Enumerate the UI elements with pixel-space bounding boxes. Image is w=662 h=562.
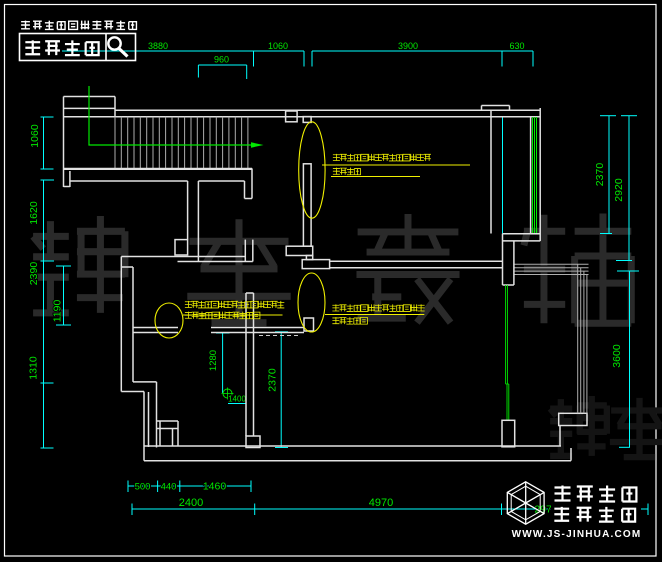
svg-text:500: 500 bbox=[135, 482, 151, 493]
svg-text:WWW.JS-JINHUA.COM: WWW.JS-JINHUA.COM bbox=[512, 529, 642, 540]
svg-text:2370: 2370 bbox=[594, 163, 606, 187]
svg-text:1310: 1310 bbox=[28, 356, 40, 380]
svg-text:2400: 2400 bbox=[179, 497, 203, 509]
svg-text:960: 960 bbox=[214, 55, 229, 65]
svg-text:1620: 1620 bbox=[28, 201, 40, 225]
svg-text:2920: 2920 bbox=[613, 178, 625, 202]
svg-text:440: 440 bbox=[161, 482, 177, 493]
svg-text:1280: 1280 bbox=[208, 350, 219, 371]
svg-text:3600: 3600 bbox=[611, 344, 623, 368]
svg-text:2390: 2390 bbox=[28, 262, 40, 286]
svg-text:630: 630 bbox=[509, 41, 524, 51]
svg-text:1060: 1060 bbox=[29, 124, 41, 148]
svg-text:3880: 3880 bbox=[148, 41, 168, 51]
svg-text:1400: 1400 bbox=[228, 395, 246, 404]
svg-text:1460: 1460 bbox=[203, 481, 227, 493]
svg-text:3900: 3900 bbox=[398, 41, 418, 51]
svg-text:2370: 2370 bbox=[267, 368, 279, 392]
svg-text:4970: 4970 bbox=[369, 497, 393, 509]
svg-text:1190: 1190 bbox=[52, 300, 64, 323]
svg-text:1060: 1060 bbox=[268, 41, 288, 51]
